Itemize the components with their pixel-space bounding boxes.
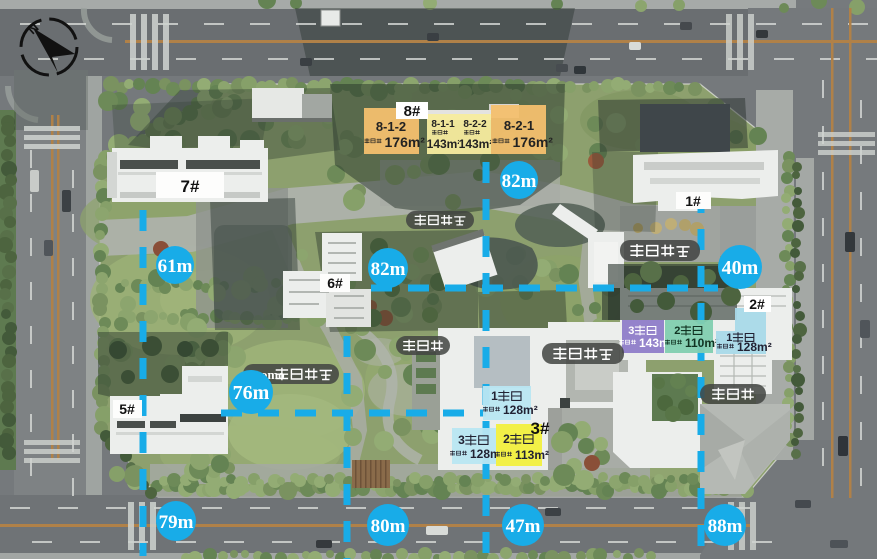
svg-text:3: 3 [458, 433, 465, 447]
svg-text:128m²: 128m² [737, 340, 772, 354]
svg-text:8-2-1: 8-2-1 [504, 118, 534, 133]
svg-text:8-1-1: 8-1-1 [431, 119, 455, 130]
svg-text:8-2-2: 8-2-2 [463, 119, 487, 130]
svg-text:82m: 82m [371, 259, 406, 280]
svg-text:143m²: 143m² [459, 137, 494, 151]
svg-text:7#: 7# [181, 177, 200, 196]
svg-text:79m: 79m [159, 512, 194, 533]
svg-text:176m²: 176m² [513, 134, 554, 150]
svg-text:113m²: 113m² [515, 448, 549, 462]
svg-text:82m: 82m [502, 171, 537, 192]
svg-text:1: 1 [491, 389, 498, 403]
svg-text:88m: 88m [708, 516, 743, 537]
svg-text:76m: 76m [233, 382, 270, 404]
svg-text:3#: 3# [531, 419, 550, 438]
svg-text:40m: 40m [722, 257, 759, 279]
svg-text:110m²: 110m² [685, 336, 719, 350]
svg-text:80m: 80m [371, 516, 406, 537]
svg-text:1#: 1# [685, 193, 701, 209]
svg-text:2: 2 [503, 432, 510, 446]
svg-text:47m: 47m [506, 516, 541, 537]
svg-text:143m²: 143m² [427, 137, 462, 151]
svg-text:8#: 8# [404, 103, 421, 120]
svg-text:8-1-2: 8-1-2 [376, 119, 406, 134]
svg-text:2: 2 [674, 325, 680, 337]
svg-text:3: 3 [628, 325, 634, 337]
svg-text:1: 1 [726, 332, 732, 344]
svg-text:61m: 61m [158, 256, 193, 277]
svg-text:176m²: 176m² [385, 134, 426, 150]
svg-text:6#: 6# [327, 275, 343, 291]
svg-text:128m²: 128m² [503, 403, 538, 417]
svg-text:2#: 2# [749, 296, 765, 312]
svg-text:5#: 5# [119, 401, 135, 417]
